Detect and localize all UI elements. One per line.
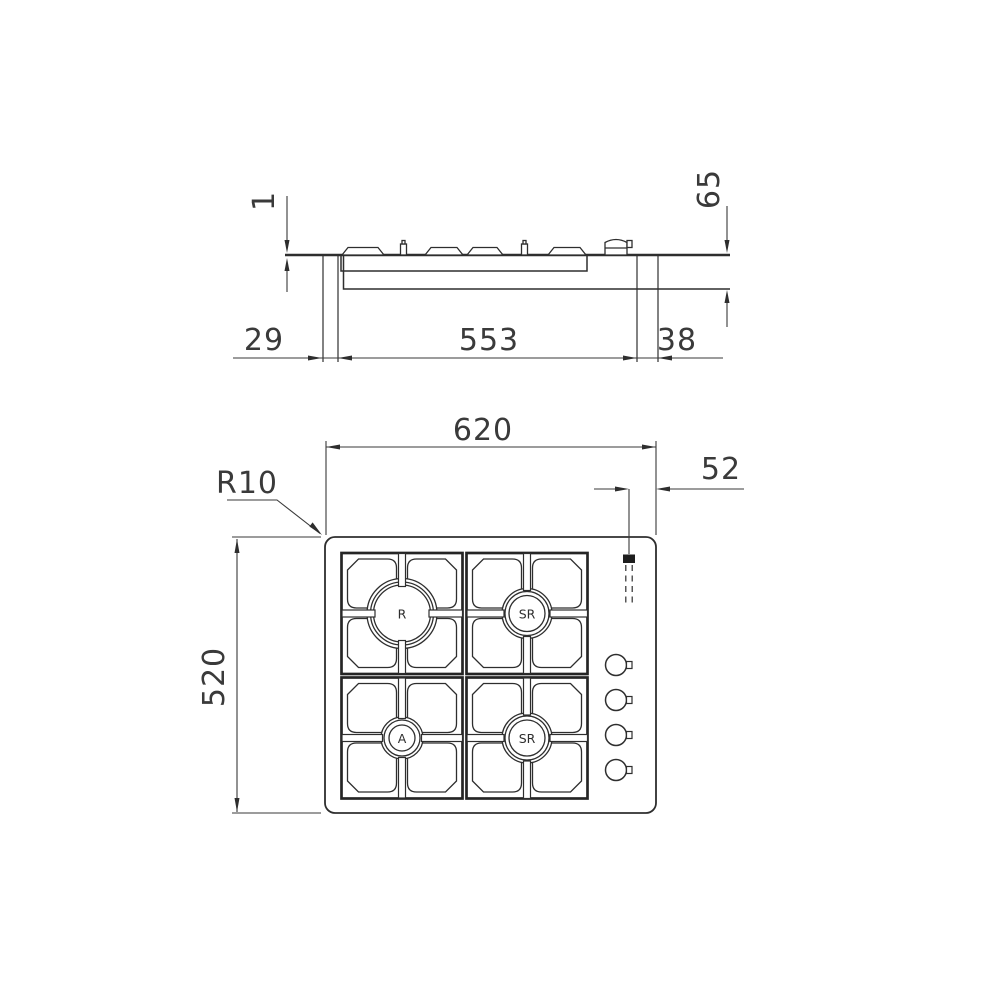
control-knob-profile xyxy=(605,240,632,256)
dim-label-depth-plan: 520 xyxy=(197,647,232,707)
pan-support-profile-3 xyxy=(467,248,503,256)
dimension-corner-radius: R10 xyxy=(216,466,322,535)
dim-label-cutout-width: 553 xyxy=(459,323,519,358)
ignition-marker-head xyxy=(623,555,635,564)
pan-support-profile-1 xyxy=(342,248,384,256)
dim-label-left-offset: 29 xyxy=(244,323,284,358)
dim-label-depth: 65 xyxy=(692,169,727,209)
burner-label-auxiliary: A xyxy=(398,731,407,746)
dimension-depth-below-worktop: 65 xyxy=(692,169,730,327)
hob-body-upper-box xyxy=(341,256,587,272)
dimension-rim-height: 1 xyxy=(247,191,290,292)
dim-label-right-offset: 38 xyxy=(657,323,697,358)
plan-view: 620 52 R10 52 xyxy=(197,413,744,813)
burner-label-rapid: R xyxy=(398,606,407,621)
dim-label-rim-height: 1 xyxy=(247,191,282,211)
dim-label-corner-radius: R10 xyxy=(216,466,278,501)
dimension-overall-depth: 520 xyxy=(197,537,321,813)
hob-installation-drawing: 1 65 29 553 38 xyxy=(0,0,1000,1000)
dim-label-width: 620 xyxy=(453,413,513,448)
burner-label-semi-rapid-rear: SR xyxy=(519,606,536,621)
side-section-view: 1 65 29 553 38 xyxy=(233,169,730,362)
hob-body-lower-box xyxy=(344,256,731,290)
dimension-cutout-chain: 29 553 38 xyxy=(233,323,723,361)
dim-label-ignition-offset: 52 xyxy=(701,452,741,487)
technical-drawing-page: 1 65 29 553 38 xyxy=(0,0,1000,1000)
dimension-overall-width: 620 xyxy=(326,413,656,535)
burner-cap-profile-1 xyxy=(401,241,407,256)
burner-label-semi-rapid-front: SR xyxy=(519,731,536,746)
pan-support-profile-2 xyxy=(425,248,463,256)
burner-cap-profile-2 xyxy=(522,241,528,256)
pan-support-profile-4 xyxy=(548,248,586,256)
